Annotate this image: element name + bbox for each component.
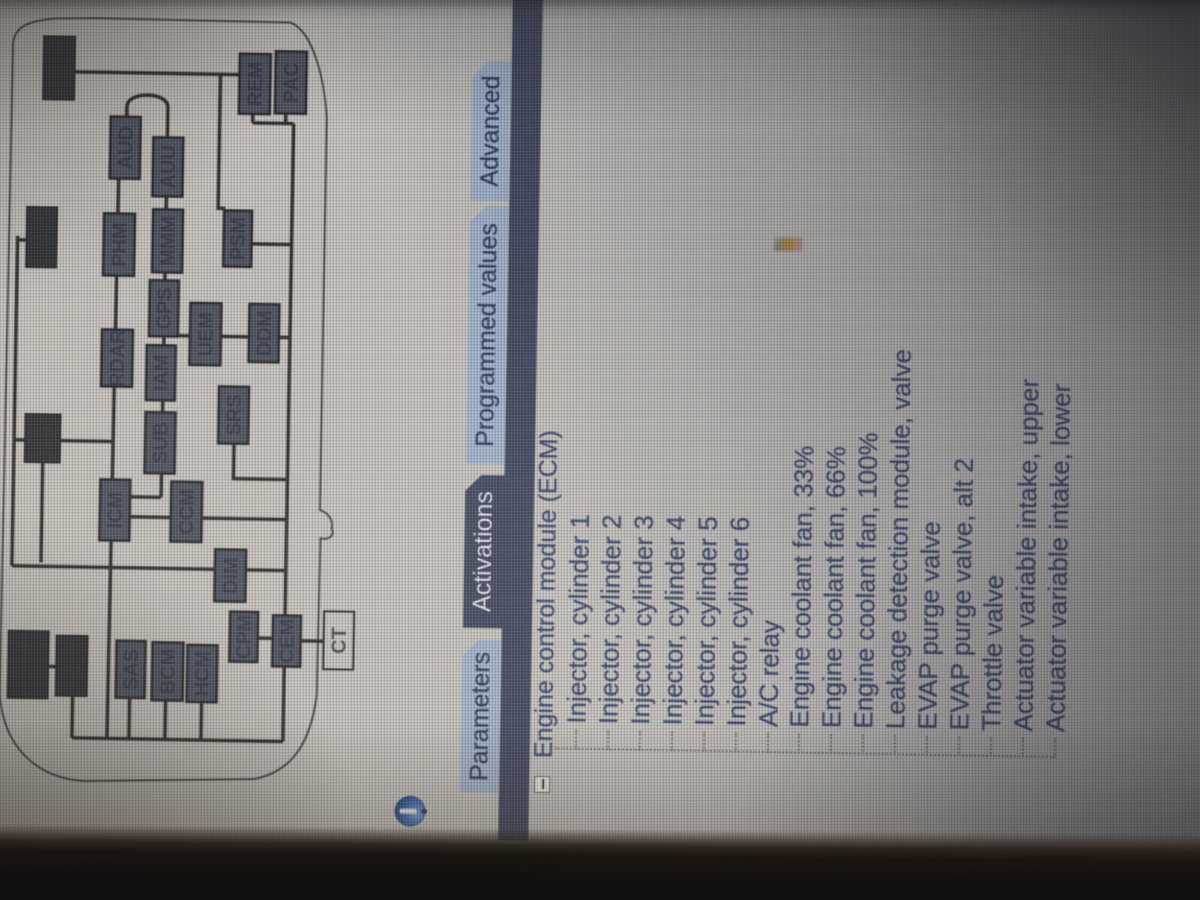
svg-text:SRS: SRS bbox=[223, 394, 246, 436]
svg-text:DDM: DDM bbox=[254, 310, 277, 356]
svg-text:DIM: DIM bbox=[220, 557, 243, 594]
svg-text:RDAR: RDAR bbox=[107, 328, 130, 387]
svg-text:PAC: PAC bbox=[281, 62, 304, 103]
svg-text:SUB: SUB bbox=[150, 422, 173, 465]
svg-text:CT: CT bbox=[328, 627, 350, 654]
svg-text:ICM: ICM bbox=[105, 492, 128, 529]
svg-text:HCM: HCM bbox=[192, 651, 215, 697]
svg-text:GPS: GPS bbox=[154, 287, 177, 330]
svg-text:CCM: CCM bbox=[176, 489, 199, 535]
svg-text:AUD: AUD bbox=[115, 126, 138, 170]
svg-text:CPM: CPM bbox=[233, 614, 256, 659]
svg-text:IAM: IAM bbox=[150, 354, 173, 391]
svg-text:REM: REM bbox=[244, 62, 267, 107]
svg-text:UEM: UEM bbox=[195, 312, 218, 357]
svg-text:SAS: SAS bbox=[120, 649, 143, 691]
svg-text:BCM: BCM bbox=[157, 649, 180, 695]
svg-text:PSM: PSM bbox=[227, 217, 250, 261]
svg-text:PHM: PHM bbox=[109, 222, 132, 267]
svg-text:AUU: AUU bbox=[157, 145, 180, 189]
svg-text:MMM: MMM bbox=[157, 216, 180, 266]
svg-text:CEM: CEM bbox=[276, 619, 299, 664]
